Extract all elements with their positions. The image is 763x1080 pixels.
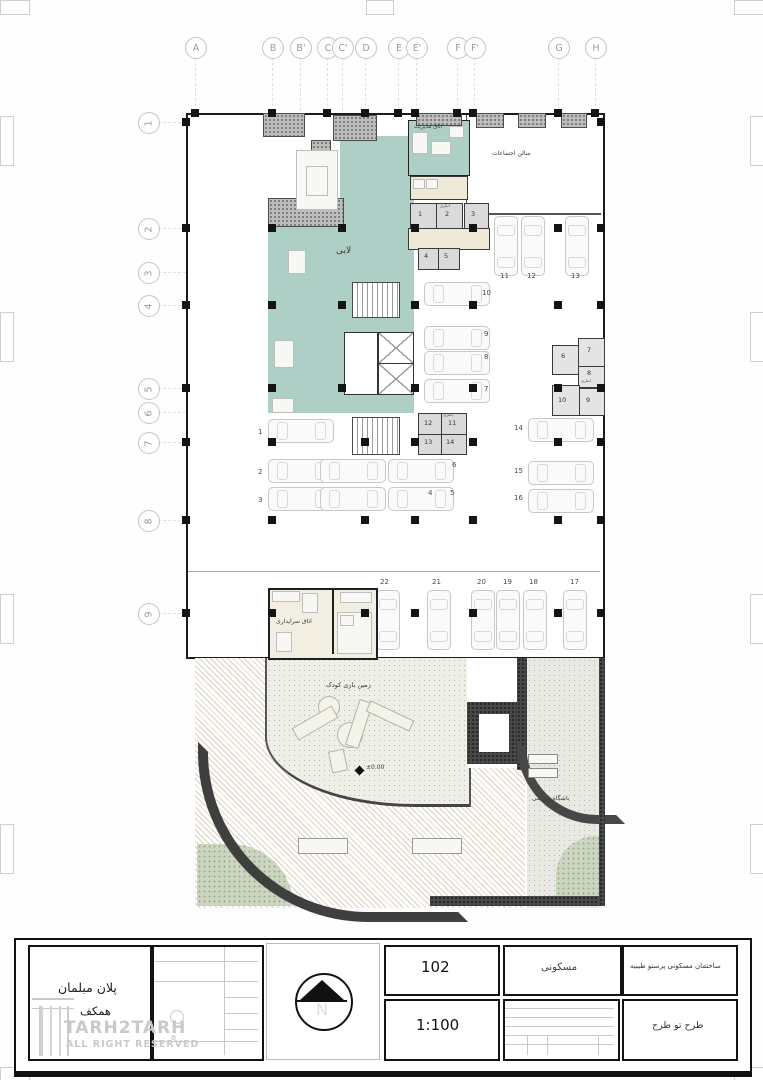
grid-row-bubble: 3 — [138, 262, 160, 284]
trim-mark — [0, 0, 30, 15]
grid-row-bubble: 2 — [138, 218, 160, 240]
grid-col-bubble: H — [585, 37, 607, 59]
drawing-sheet: A B B' C C' D E E' F F' G H 1 2 3 4 5 6 … — [0, 0, 763, 1080]
car-icon — [521, 216, 545, 276]
trim-mark — [750, 824, 763, 874]
gym-equipment — [528, 754, 558, 764]
car-icon — [388, 459, 454, 483]
hatched-wall — [518, 113, 546, 128]
storage-room — [578, 388, 605, 416]
parking-number: 16 — [514, 494, 523, 502]
storage-label: انباری — [443, 412, 453, 417]
storage-room — [418, 248, 440, 270]
car-icon — [563, 590, 587, 650]
trim-mark — [0, 116, 14, 166]
elevator-shaft — [344, 332, 378, 395]
trim-mark — [0, 312, 14, 362]
management-label: اتاق مدیریت — [414, 124, 442, 130]
grid-col-bubble: A — [185, 37, 207, 59]
hatched-wall — [476, 113, 504, 128]
grid-col-bubble: B — [262, 37, 284, 59]
parking-number: 4 — [428, 489, 432, 497]
storage-number: 12 — [424, 419, 432, 427]
staircase — [352, 417, 400, 455]
parking-number: 9 — [484, 330, 488, 338]
grid-col-bubble: B' — [290, 37, 312, 59]
car-icon — [523, 590, 547, 650]
car-icon — [424, 379, 490, 403]
parking-number: 12 — [527, 272, 536, 280]
storage-room — [552, 345, 580, 375]
storage-number: 3 — [471, 210, 475, 218]
storage-number: 2 — [445, 210, 449, 218]
playground-label: زمین بازی کودک — [326, 681, 371, 689]
corridor — [408, 228, 490, 250]
trim-mark — [0, 594, 14, 644]
parking-number: 5 — [450, 489, 454, 497]
storage-number: 10 — [558, 396, 566, 404]
parking-number: 20 — [477, 578, 486, 586]
storage-number: 7 — [587, 346, 591, 354]
level-marker: ±0.00 — [366, 764, 384, 771]
storage-number: 14 — [446, 438, 454, 446]
scale-value: 1:100 — [416, 1016, 459, 1034]
car-icon — [388, 487, 454, 511]
car-icon — [471, 590, 495, 650]
assembly-hall-label: سالن اجتماعات — [492, 150, 531, 157]
car-icon — [496, 590, 520, 650]
storage-label: انباری — [581, 378, 591, 383]
grid-row-bubble: 1 — [138, 112, 160, 134]
watermark-text: ALL RIGHT RESERVED — [66, 1039, 199, 1050]
north-letter: N — [316, 1000, 328, 1019]
project-title-panel — [622, 945, 738, 996]
registered-icon: ® — [170, 1034, 178, 1042]
parking-number: 17 — [570, 578, 579, 586]
drawing-title-fa: پلان مبلمان — [58, 980, 117, 995]
storage-number: 1 — [418, 210, 422, 218]
lobby-area — [268, 222, 344, 413]
grid-row-bubble: 6 — [138, 402, 160, 424]
parking-number: 14 — [514, 424, 523, 432]
drawing-subtitle-fa: همکف — [80, 1004, 111, 1018]
grid-row-bubble: 7 — [138, 432, 160, 454]
grid-row-bubble: 5 — [138, 378, 160, 400]
grid-col-bubble: G — [548, 37, 570, 59]
car-icon — [494, 216, 518, 276]
storage-number: 13 — [424, 438, 432, 446]
hatched-wall — [561, 113, 587, 128]
parking-number: 19 — [503, 578, 512, 586]
watermark-text: TARH2TARH — [64, 1018, 186, 1038]
grid-row-bubble: 8 — [138, 510, 160, 532]
parking-number: 2 — [258, 468, 262, 476]
storage-room — [438, 248, 460, 270]
grid-row-bubble: 9 — [138, 603, 160, 625]
parking-number: 6 — [452, 461, 456, 469]
trim-mark — [366, 0, 394, 15]
parking-number: 1 — [258, 428, 262, 436]
gym-equipment — [528, 768, 558, 778]
car-icon — [320, 487, 386, 511]
storage-number: 11 — [448, 419, 456, 427]
storage-number: 4 — [424, 252, 428, 260]
grid-col-bubble: C' — [332, 37, 354, 59]
parking-number: 22 — [380, 578, 389, 586]
car-icon — [528, 489, 594, 513]
parking-number: 3 — [258, 496, 262, 504]
trim-mark — [750, 312, 763, 362]
parking-number: 18 — [529, 578, 538, 586]
car-icon — [565, 216, 589, 276]
parking-number: 15 — [514, 467, 523, 475]
ordered-by-value: طرح تو طرح — [652, 1020, 703, 1031]
staircase — [352, 282, 400, 318]
grid-col-bubble: F' — [464, 37, 486, 59]
car-icon — [528, 461, 594, 485]
sheet-number-value: 102 — [421, 958, 450, 976]
bench — [412, 838, 462, 854]
grid-col-bubble: D — [355, 37, 377, 59]
project-title-value: ساختمان مسکونی پرستو طیبیه — [630, 962, 721, 970]
site-wall — [430, 896, 605, 906]
gym-label: باشگاه ورزشی — [532, 795, 569, 802]
grid-col-bubble: E' — [406, 37, 428, 59]
trim-mark — [750, 116, 763, 166]
elevator — [378, 363, 414, 395]
car-icon — [376, 590, 400, 650]
grid-row-bubble: 4 — [138, 295, 160, 317]
storage-label: انباری — [440, 203, 450, 208]
hatched-wall — [333, 115, 377, 141]
car-icon — [424, 282, 490, 306]
trim-mark — [750, 594, 763, 644]
car-icon — [424, 326, 490, 350]
bench — [298, 838, 348, 854]
parking-number: 13 — [571, 272, 580, 280]
storage-number: 5 — [444, 252, 448, 260]
parking-number: 21 — [432, 578, 441, 586]
car-icon — [268, 419, 334, 443]
storage-number: 6 — [561, 352, 565, 360]
trim-mark — [734, 0, 763, 15]
trim-mark — [0, 824, 14, 874]
elevator — [378, 332, 414, 364]
car-icon — [427, 590, 451, 650]
storage-number: 9 — [586, 396, 590, 404]
storage-number: 8 — [587, 369, 591, 377]
lobby-label: لابی — [336, 246, 351, 256]
car-icon — [320, 459, 386, 483]
janitor-label: اتاق سرایداری — [276, 618, 312, 625]
parking-number: 7 — [484, 385, 488, 393]
usage-value: مسکونی — [541, 962, 577, 973]
parking-number: 8 — [484, 353, 488, 361]
north-triangle — [300, 980, 344, 1000]
storage-room — [578, 338, 605, 368]
parking-number: 10 — [482, 289, 491, 297]
car-icon — [424, 351, 490, 375]
site-wall — [599, 658, 605, 906]
parking-number: 11 — [500, 272, 509, 280]
